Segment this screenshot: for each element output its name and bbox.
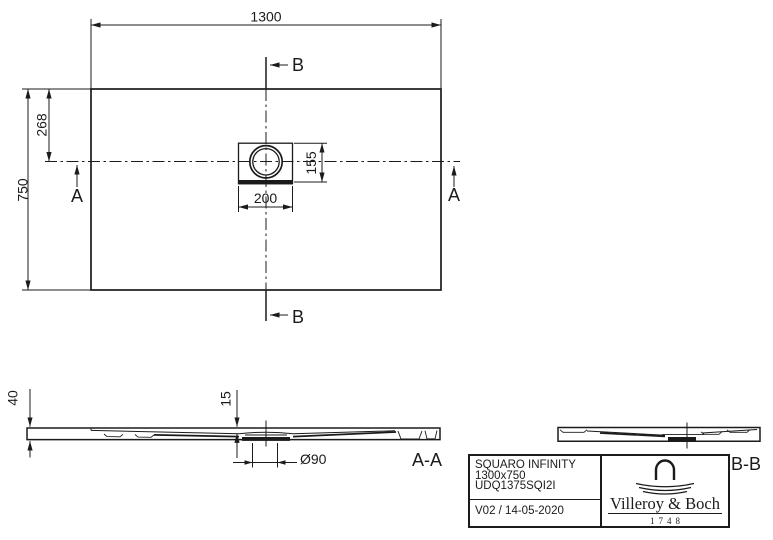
brand-name: Villeroy & Boch	[608, 495, 722, 514]
dimension-drain-box-depth: 155	[294, 143, 327, 182]
dimension-overall-width: 1300	[91, 9, 441, 26]
revision-date: V02 / 14-05-2020	[470, 499, 600, 526]
dim-750-label: 750	[15, 178, 31, 202]
logo-waves	[636, 484, 694, 495]
product-info: SQUARO INFINITY 1300x750 UDQ1375SQI2I	[470, 456, 600, 499]
aa-drain-bar	[242, 437, 290, 441]
drawing-sheet: 1300 750 268 155	[0, 0, 773, 540]
section-a-label-left: A	[71, 186, 83, 206]
section-bb-title: B-B	[731, 454, 761, 474]
article-code: UDQ1375SQI2I	[475, 481, 598, 492]
plan-view: 1300 750 268 155	[15, 9, 461, 328]
section-marker-a-right: A	[448, 166, 460, 205]
logo-arch	[656, 461, 674, 481]
drain-bar	[238, 180, 293, 184]
section-b-label-top: B	[292, 55, 304, 75]
dim-200-label: 200	[254, 190, 278, 206]
title-block: SQUARO INFINITY 1300x750 UDQ1375SQI2I V0…	[468, 454, 730, 528]
villeroy-boch-logo-icon	[605, 458, 725, 495]
aa-profile-details	[91, 421, 437, 447]
dimension-recess-depth: 15	[218, 390, 238, 458]
dim-15-label: 15	[218, 391, 234, 407]
dim-40-label: 40	[5, 390, 21, 406]
extension-lines	[22, 19, 441, 290]
section-a-label-right: A	[448, 185, 460, 205]
dim-diameter-label: Ø90	[300, 451, 327, 467]
section-marker-a-left: A	[71, 165, 83, 206]
dimension-overall-depth: 750	[15, 89, 31, 290]
dim-268-label: 268	[34, 113, 50, 137]
dim-155-label: 155	[303, 151, 319, 175]
section-marker-b-bottom: B	[270, 307, 304, 327]
dim-1300-label: 1300	[250, 9, 281, 25]
dimension-drain-diameter: Ø90	[233, 443, 327, 468]
brand-cell: Villeroy & Boch 1748	[602, 456, 728, 526]
bb-drain-bar	[668, 437, 696, 441]
dimension-drain-offset: 268	[34, 89, 50, 162]
section-marker-b-top: B	[270, 55, 304, 75]
brand-year: 1748	[646, 516, 684, 526]
section-aa-title: A-A	[412, 450, 442, 470]
product-name: SQUARO INFINITY	[475, 460, 598, 471]
section-b-label-bottom: B	[292, 307, 304, 327]
title-block-info-cell: SQUARO INFINITY 1300x750 UDQ1375SQI2I V0…	[470, 456, 602, 526]
bb-profile-details	[560, 423, 757, 449]
section-aa-view: 40 15 Ø90 A-A	[5, 389, 443, 470]
dimension-edge-thickness: 40	[5, 389, 31, 458]
